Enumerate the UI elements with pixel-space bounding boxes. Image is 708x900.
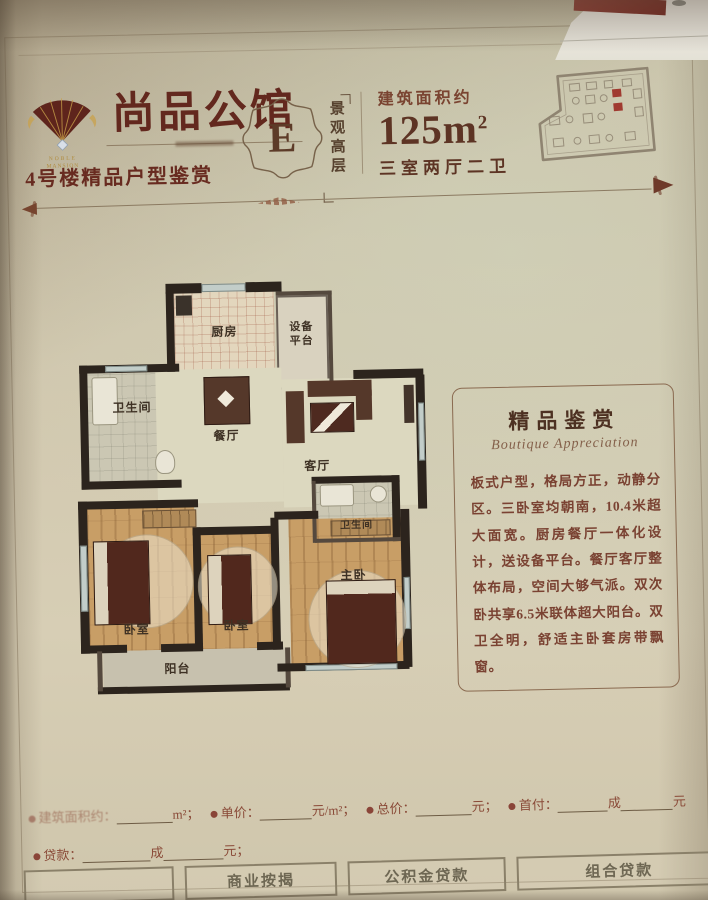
sofa-left <box>286 391 305 443</box>
form-total-label: 总价： <box>376 801 415 817</box>
bullet-icon <box>33 853 40 860</box>
panel-title: 精品鉴赏 <box>469 403 660 437</box>
form-price-blank <box>260 807 312 820</box>
table-cell-commercial: 商业按揭 <box>185 862 338 900</box>
form-loan-blank <box>82 849 150 863</box>
form-total-unit: 元； <box>471 798 497 814</box>
armchair <box>356 390 373 420</box>
form-area-blank <box>116 811 172 824</box>
label-balcony: 阳台 <box>153 659 201 677</box>
label-equipment: 设备平台 <box>287 321 316 349</box>
window-bath-1 <box>105 365 147 372</box>
brochure-sheet: NOBLE MANSION 尚品公馆 4号楼精品户型鉴赏 E 景观高层 建筑面积… <box>0 0 708 900</box>
floor-plan: 厨房 设备平台 卫生间 餐厅 客厅 卫生间 卧室 卧室 主卧 阳台 <box>53 276 442 704</box>
rooms-spec: 三室两厅二卫 <box>379 151 529 179</box>
form-down-blank-2 <box>621 798 673 811</box>
window-kitchen <box>201 283 245 292</box>
table-cell-empty <box>24 866 175 900</box>
label-dining: 餐厅 <box>202 426 250 444</box>
label-master: 主卧 <box>329 566 377 584</box>
form-down-blank <box>558 800 608 813</box>
building-subtitle: 4号楼精品户型鉴赏 <box>21 159 218 192</box>
bullet-icon <box>29 816 36 823</box>
table-cell-fund: 公积金贷款 <box>347 857 506 895</box>
label-bath-1: 卫生间 <box>104 398 160 416</box>
form-area-unit: m²； <box>172 806 199 822</box>
divider-right-arrow-icon <box>653 177 681 194</box>
label-bath-2: 卫生间 <box>330 515 382 531</box>
toilet-1 <box>155 450 175 474</box>
form-loan-blank-2 <box>163 847 223 861</box>
highlighted-unit <box>612 89 622 98</box>
label-bedroom-1: 卧室 <box>112 620 160 638</box>
table-cell-combined: 组合贷款 <box>516 851 708 891</box>
panel-subtitle: Boutique Appreciation <box>470 435 660 455</box>
closet-bedroom-1 <box>142 509 196 528</box>
kitchen-counter <box>176 295 192 315</box>
bed-bedroom-2 <box>207 554 252 625</box>
tv-cabinet <box>404 385 415 423</box>
label-bedroom-2: 卧室 <box>212 616 260 634</box>
window-living <box>418 403 425 461</box>
panel-body-text: 板式户型，格局方正，动静分区。三卧室均朝南，10.4米超大面宽。厨房餐厅一体化设… <box>470 467 664 681</box>
area-block: 建筑面积约 125m2 三室两厅二卫 <box>377 82 529 179</box>
label-living: 客厅 <box>293 456 341 474</box>
description-panel: 精品鉴赏 Boutique Appreciation 板式户型，格局方正，动静分… <box>452 383 680 692</box>
form-loan-mid: 成 <box>150 845 163 860</box>
bullet-icon <box>211 811 218 818</box>
window-bedroom-1 <box>80 546 88 612</box>
form-loan-label: 贷款： <box>43 847 82 863</box>
bullet-icon <box>367 807 374 814</box>
unit-letter: E <box>237 114 328 164</box>
unit-badge: E <box>236 93 328 185</box>
bed-bedroom-1 <box>93 540 151 625</box>
form-total-blank <box>416 803 472 816</box>
form-down-tail: 元 <box>673 793 686 808</box>
bathtub-2 <box>320 484 354 507</box>
form-price-label: 单价： <box>221 805 260 821</box>
label-kitchen: 厨房 <box>200 322 248 340</box>
bed-master <box>326 579 398 664</box>
form-area-label: 建筑面积约： <box>38 808 116 825</box>
form-price-unit: 元/m²； <box>312 802 356 818</box>
area-value: 125m2 <box>378 106 529 152</box>
brochure-photo: NOBLE MANSION 尚品公馆 4号楼精品户型鉴赏 E 景观高层 建筑面积… <box>0 0 708 900</box>
bullet-icon <box>509 803 516 810</box>
form-down-label: 首付： <box>519 797 558 813</box>
form-loan-unit: 元； <box>223 843 249 859</box>
site-key-plan <box>522 51 671 173</box>
form-down-mid: 成 <box>608 795 621 810</box>
coffee-table <box>310 402 355 433</box>
